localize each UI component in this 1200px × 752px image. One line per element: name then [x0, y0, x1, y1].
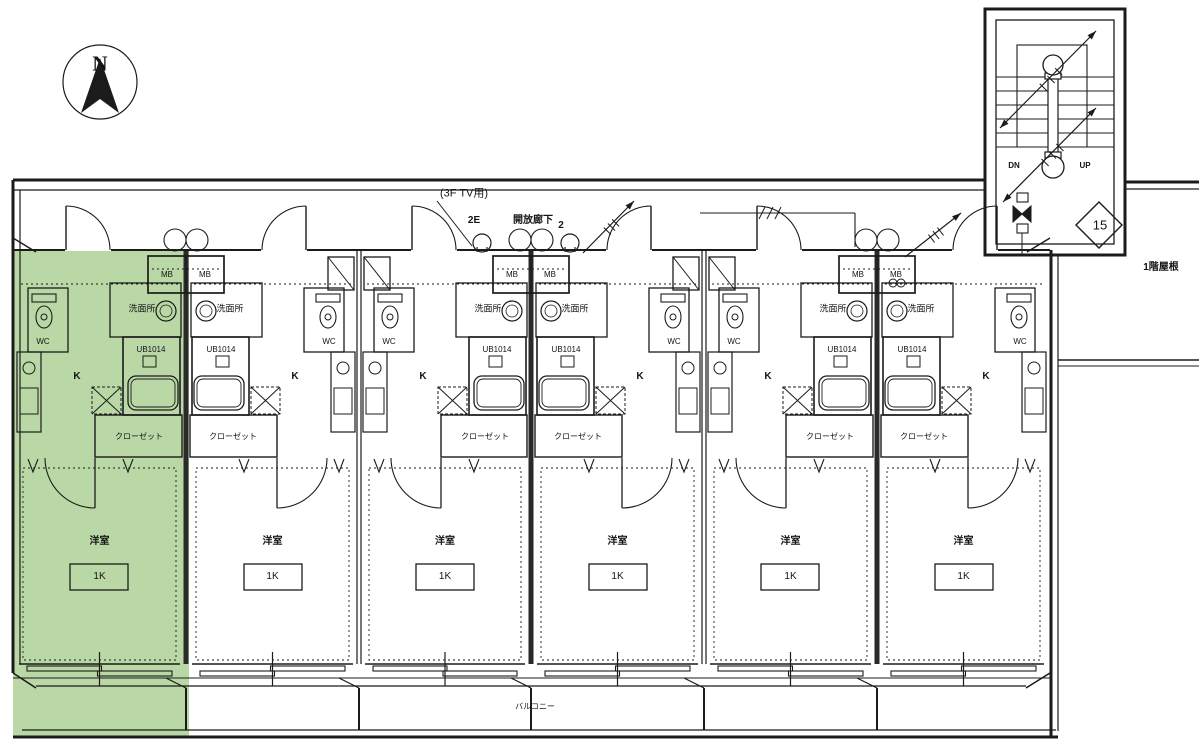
unit-6-kitchen-label: K: [982, 372, 989, 382]
unit-4-washroom-label: 洗面所: [561, 305, 588, 314]
unit-4-closet-label: クローゼット: [554, 433, 602, 441]
unit-5-washroom-label: 洗面所: [819, 305, 846, 314]
meter-box-label: MB: [852, 271, 864, 279]
unit-6-wc-label: WC: [1013, 338, 1026, 346]
unit-3-kitchen-label: K: [419, 372, 426, 382]
open-corridor-label: 開放廊下: [513, 216, 553, 226]
meter-box-label: MB: [890, 271, 902, 279]
corridor-light-left-label: 2E: [468, 216, 480, 226]
unit-4-room-label: 洋室: [608, 537, 628, 547]
unit-1-bath-label: UB1014: [137, 346, 166, 354]
labels-layer: N (3F TV用) 2E 開放廊下 2 DN UP 15 1階屋根 バルコニー…: [0, 0, 1200, 752]
unit-2-closet-label: クローゼット: [209, 433, 257, 441]
meter-box-label: MB: [506, 271, 518, 279]
meter-box-label: MB: [199, 271, 211, 279]
floor-plan-page: N (3F TV用) 2E 開放廊下 2 DN UP 15 1階屋根 バルコニー…: [0, 0, 1200, 752]
unit-2-wc-label: WC: [322, 338, 335, 346]
meter-box-label: MB: [544, 271, 556, 279]
stairs-down-label: DN: [1008, 162, 1020, 170]
unit-3-closet-label: クローゼット: [461, 433, 509, 441]
unit-1-kitchen-label: K: [73, 372, 80, 382]
unit-2-room-label: 洋室: [263, 537, 283, 547]
unit-3-wc-label: WC: [382, 338, 395, 346]
unit-4-kitchen-label: K: [636, 372, 643, 382]
unit-4-plan-label: 1K: [611, 572, 623, 582]
unit-3-plan-label: 1K: [439, 572, 451, 582]
unit-3-bath-label: UB1014: [483, 346, 512, 354]
unit-1-wc-label: WC: [36, 338, 49, 346]
unit-1-room-label: 洋室: [90, 537, 110, 547]
unit-6-closet-label: クローゼット: [900, 433, 948, 441]
unit-5-kitchen-label: K: [764, 372, 771, 382]
unit-4-wc-label: WC: [667, 338, 680, 346]
unit-5-bath-label: UB1014: [828, 346, 857, 354]
unit-2-bath-label: UB1014: [207, 346, 236, 354]
unit-6-washroom-label: 洗面所: [907, 305, 934, 314]
stairs-up-label: UP: [1079, 162, 1090, 170]
unit-2-plan-label: 1K: [266, 572, 278, 582]
unit-5-closet-label: クローゼット: [806, 433, 854, 441]
unit-1-plan-label: 1K: [93, 572, 105, 582]
unit-2-kitchen-label: K: [291, 372, 298, 382]
unit-6-room-label: 洋室: [954, 537, 974, 547]
unit-6-plan-label: 1K: [957, 572, 969, 582]
tv-note-label: (3F TV用): [440, 189, 488, 200]
unit-3-washroom-label: 洗面所: [474, 305, 501, 314]
stair-room-number: 15: [1093, 219, 1107, 232]
unit-3-room-label: 洋室: [435, 537, 455, 547]
unit-5-room-label: 洋室: [781, 537, 801, 547]
unit-2-washroom-label: 洗面所: [216, 305, 243, 314]
unit-1-closet-label: クローゼット: [115, 433, 163, 441]
unit-5-wc-label: WC: [727, 338, 740, 346]
unit-6-bath-label: UB1014: [898, 346, 927, 354]
north-label: N: [92, 54, 107, 75]
meter-box-label: MB: [161, 271, 173, 279]
unit-1-washroom-label: 洗面所: [128, 305, 155, 314]
balcony-label: バルコニー: [515, 703, 555, 711]
unit-4-bath-label: UB1014: [552, 346, 581, 354]
roof-label: 1階屋根: [1143, 263, 1179, 273]
unit-5-plan-label: 1K: [784, 572, 796, 582]
corridor-light-right-label: 2: [558, 221, 564, 231]
